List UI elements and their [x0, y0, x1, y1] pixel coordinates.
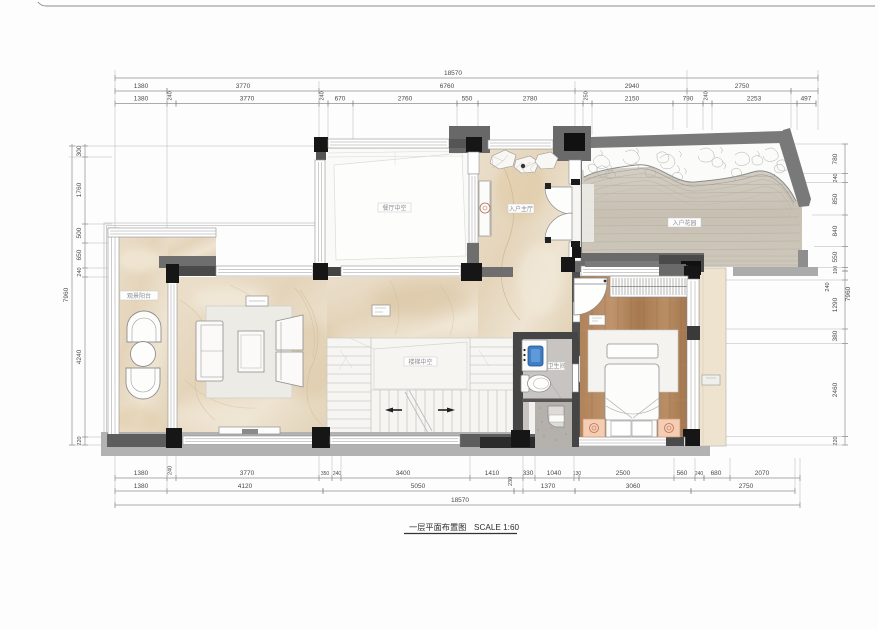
svg-text:餐厅中空: 餐厅中空: [382, 204, 406, 212]
svg-text:7960: 7960: [845, 286, 852, 301]
svg-text:一层平面布置图: 一层平面布置图: [409, 522, 466, 532]
svg-text:2500: 2500: [616, 470, 631, 477]
svg-text:300: 300: [76, 145, 83, 156]
svg-text:240: 240: [833, 173, 839, 182]
svg-text:楼梯中空: 楼梯中空: [408, 358, 432, 366]
svg-text:1380: 1380: [134, 96, 149, 103]
svg-text:330: 330: [523, 470, 534, 477]
svg-text:560: 560: [677, 470, 688, 477]
svg-text:220: 220: [77, 436, 83, 445]
svg-text:230: 230: [508, 477, 514, 486]
svg-text:100: 100: [833, 266, 839, 275]
svg-text:2940: 2940: [625, 83, 640, 90]
svg-text:1380: 1380: [134, 483, 149, 490]
svg-text:840: 840: [832, 225, 839, 236]
svg-text:3770: 3770: [236, 83, 251, 90]
svg-text:650: 650: [76, 249, 83, 260]
svg-text:18570: 18570: [444, 70, 462, 77]
svg-text:1380: 1380: [134, 470, 149, 477]
svg-text:2780: 2780: [523, 96, 538, 103]
svg-text:550: 550: [832, 251, 839, 262]
svg-text:240: 240: [168, 466, 174, 475]
svg-text:3770: 3770: [240, 96, 255, 103]
svg-text:SCALE 1:60: SCALE 1:60: [474, 523, 520, 532]
svg-text:790: 790: [683, 96, 694, 103]
svg-text:680: 680: [711, 470, 722, 477]
svg-text:500: 500: [76, 227, 83, 238]
svg-text:240: 240: [320, 91, 326, 100]
svg-text:4120: 4120: [238, 483, 253, 490]
svg-text:18570: 18570: [451, 497, 469, 504]
svg-text:观景阳台: 观景阳台: [127, 292, 151, 300]
svg-text:240: 240: [825, 282, 831, 291]
svg-text:2150: 2150: [625, 96, 640, 103]
svg-text:1370: 1370: [541, 483, 556, 490]
svg-text:250: 250: [584, 91, 590, 100]
svg-text:220: 220: [833, 436, 839, 445]
svg-text:入户花园: 入户花园: [672, 219, 696, 227]
svg-text:3400: 3400: [396, 470, 411, 477]
svg-text:850: 850: [832, 193, 839, 204]
svg-text:670: 670: [335, 96, 346, 103]
svg-text:3060: 3060: [626, 483, 641, 490]
svg-text:2253: 2253: [747, 96, 762, 103]
svg-text:6760: 6760: [440, 83, 455, 90]
svg-text:2750: 2750: [739, 483, 754, 490]
svg-text:5050: 5050: [411, 483, 426, 490]
svg-text:497: 497: [801, 96, 812, 103]
svg-text:350: 350: [321, 471, 330, 477]
svg-text:240: 240: [168, 91, 174, 100]
svg-text:240: 240: [77, 267, 83, 276]
svg-text:780: 780: [832, 153, 839, 164]
svg-text:240: 240: [704, 91, 710, 100]
svg-text:1410: 1410: [485, 470, 500, 477]
svg-text:1380: 1380: [134, 83, 149, 90]
svg-text:7960: 7960: [63, 287, 70, 302]
svg-text:1290: 1290: [832, 297, 839, 312]
svg-text:2070: 2070: [755, 470, 770, 477]
svg-text:380: 380: [832, 330, 839, 341]
svg-text:550: 550: [462, 96, 473, 103]
svg-text:入户主厅: 入户主厅: [509, 205, 533, 213]
svg-text:2750: 2750: [735, 83, 750, 90]
svg-text:1760: 1760: [76, 182, 83, 197]
svg-text:2460: 2460: [832, 382, 839, 397]
svg-text:4240: 4240: [76, 349, 83, 364]
svg-text:2760: 2760: [398, 96, 413, 103]
svg-text:1040: 1040: [547, 470, 562, 477]
svg-text:3770: 3770: [240, 470, 255, 477]
svg-text:240: 240: [695, 471, 704, 477]
svg-text:卫生间: 卫生间: [547, 362, 565, 370]
svg-text:240: 240: [333, 471, 342, 477]
